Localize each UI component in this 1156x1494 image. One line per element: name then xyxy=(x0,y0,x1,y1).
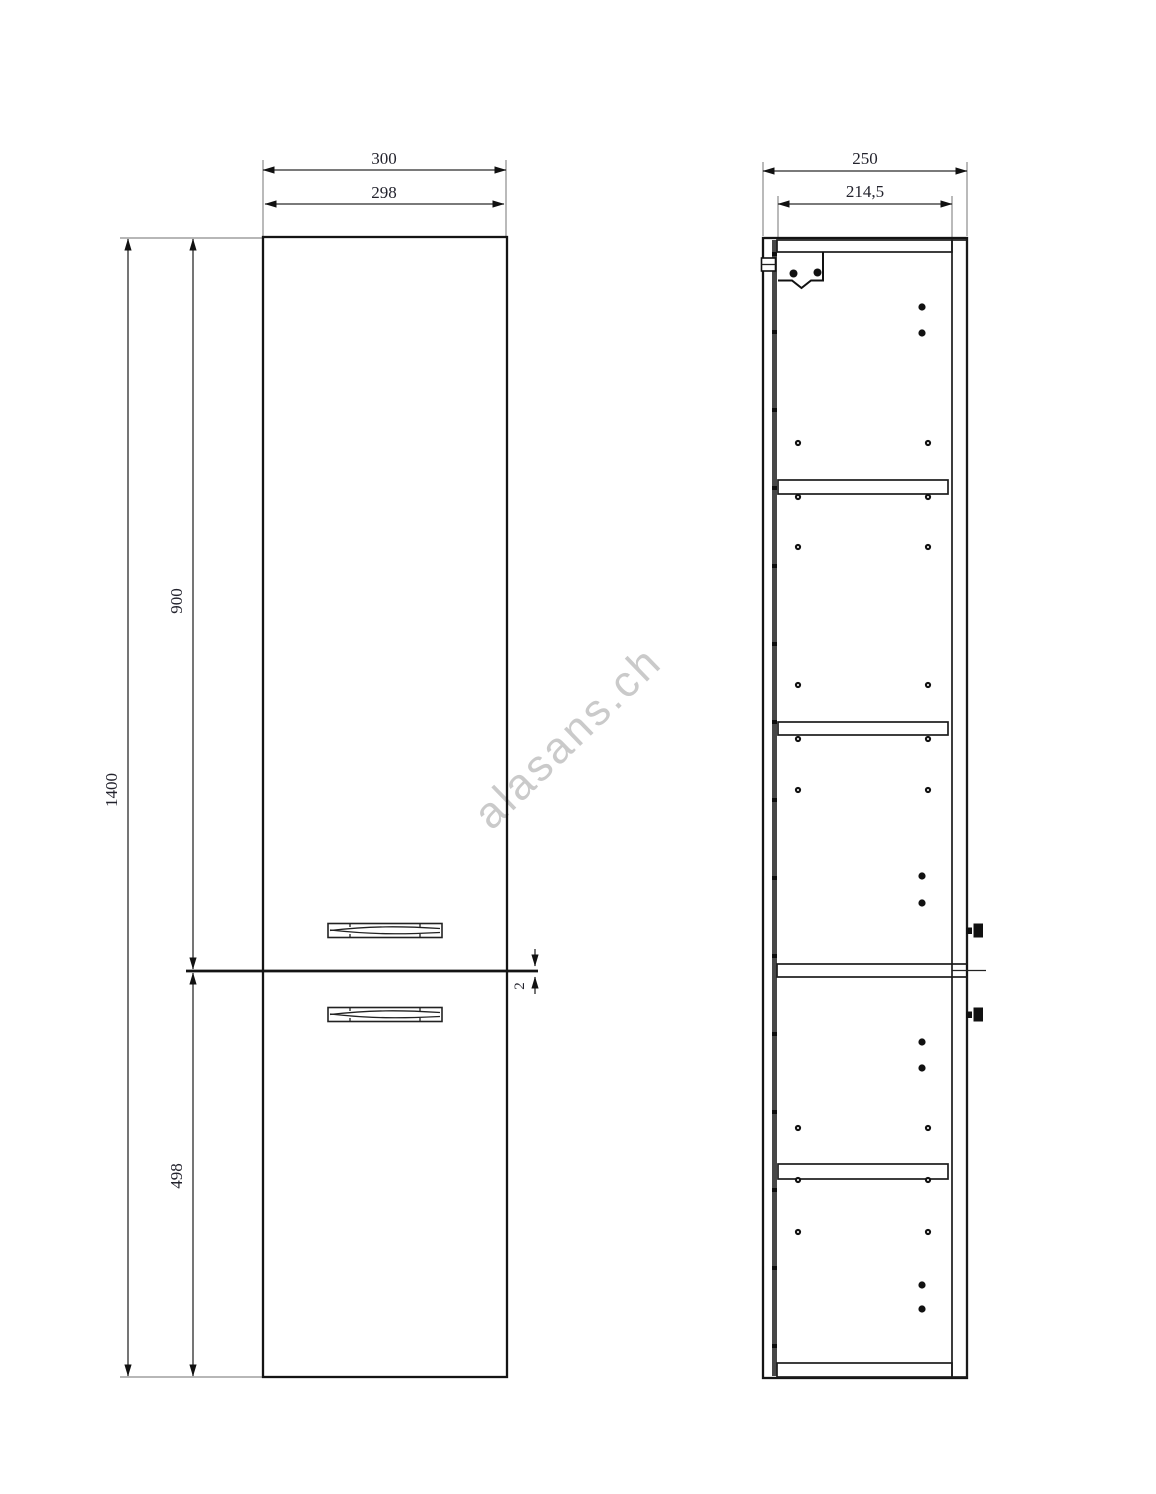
dim-label-door-gap: 2 xyxy=(512,982,528,990)
dim-label-door-bottom: 498 xyxy=(167,1163,186,1189)
dim-front-height-total: 1400 xyxy=(102,239,128,1376)
hinge-screw-holes xyxy=(918,303,925,1312)
dim-label-width-inner: 298 xyxy=(371,183,397,202)
wall-bracket xyxy=(762,252,824,288)
handle-top-door xyxy=(328,924,442,938)
dim-label-width-outer: 300 xyxy=(371,149,397,168)
dim-front-width-inner: 298 xyxy=(265,183,504,204)
shelf-section-3 xyxy=(778,1164,948,1179)
dim-front-width-outer: 300 xyxy=(263,149,506,170)
shelf-pin-holes xyxy=(795,440,931,1235)
watermark: alasans.ch xyxy=(464,636,671,838)
dim-label-depth-outer: 250 xyxy=(852,149,878,168)
dim-side-depth-outer: 250 xyxy=(763,149,967,171)
dim-label-height-total: 1400 xyxy=(102,773,121,807)
shelf-section-2 xyxy=(778,722,948,735)
side-view: 250 214,5 xyxy=(762,149,987,1378)
fixed-shelf-section xyxy=(777,964,952,977)
cabinet-side-outline xyxy=(763,238,967,1378)
dim-side-depth-inner: 214,5 xyxy=(778,182,952,204)
dim-front-door-top: 900 xyxy=(167,239,193,969)
shelf-section-1 xyxy=(778,480,948,494)
handle-profile-top xyxy=(966,924,983,938)
top-door-section xyxy=(952,240,967,964)
bottom-door-section xyxy=(952,977,967,1377)
top-panel-section xyxy=(777,240,952,252)
dim-label-depth-inner: 214,5 xyxy=(846,182,884,201)
cabinet-technical-drawing: alasans.ch xyxy=(0,0,1156,1494)
handle-profile-bottom xyxy=(966,1008,983,1022)
bottom-panel-section xyxy=(777,1363,952,1377)
technical-drawing-page: alasans.ch xyxy=(0,0,1156,1494)
handle-bottom-door xyxy=(328,1008,442,1022)
front-view: 300 298 1400 900 498 2 xyxy=(102,149,538,1377)
dim-label-door-top: 900 xyxy=(167,588,186,614)
dim-front-door-bottom: 498 xyxy=(167,973,193,1376)
